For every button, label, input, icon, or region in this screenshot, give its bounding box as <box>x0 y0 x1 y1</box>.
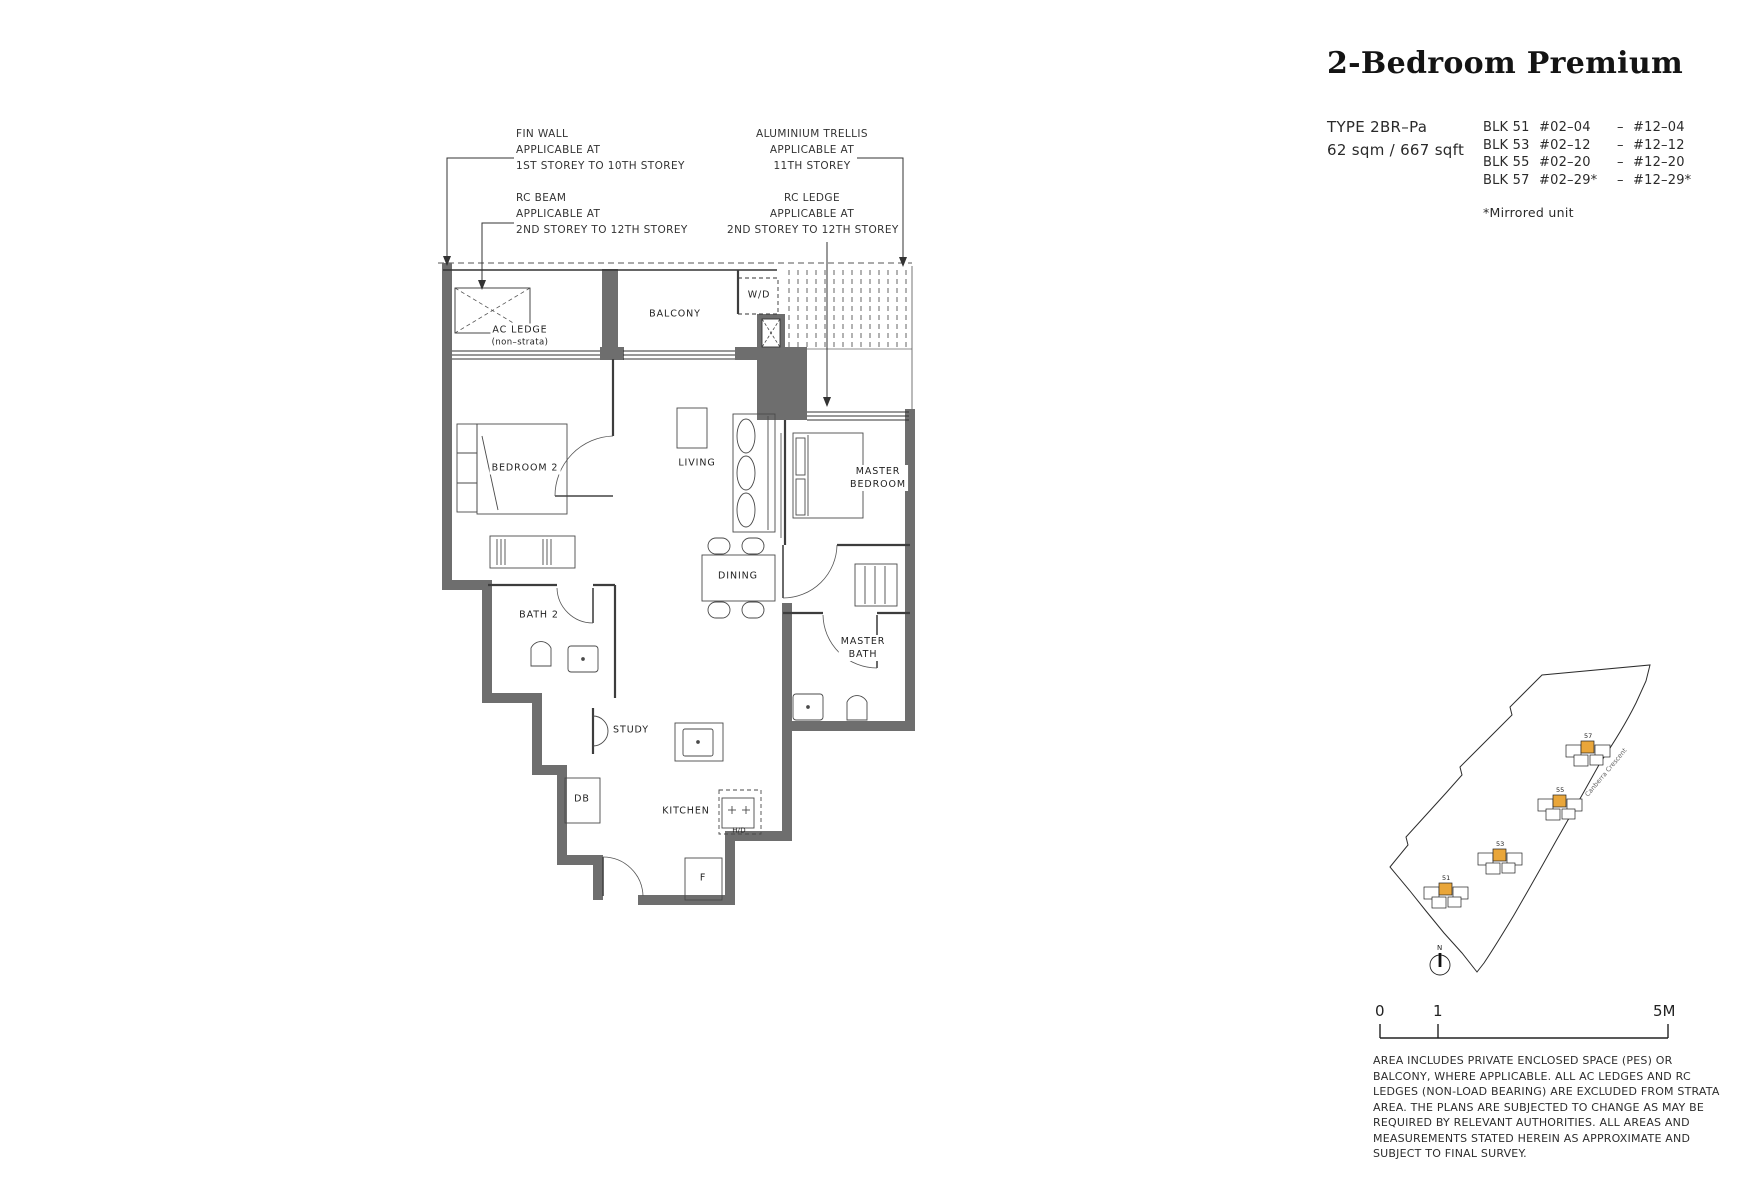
label-fridge: F <box>698 872 708 885</box>
label-kitchen: KITCHEN <box>660 805 711 818</box>
north-label: N <box>1437 944 1442 952</box>
trellis-line1: ALUMINIUM TRELLIS <box>727 126 897 142</box>
label-bath2: BATH 2 <box>517 609 561 622</box>
door-swing-arcs <box>555 436 877 896</box>
blk-label: BLK 55 <box>1483 154 1539 172</box>
unit-area: 62 sqm / 667 sqft <box>1327 139 1464 162</box>
windows <box>452 351 909 420</box>
label-hob: H/D <box>730 825 748 838</box>
fin-wall-line3: 1ST STOREY TO 10TH STOREY <box>516 158 685 174</box>
sofa <box>733 414 775 532</box>
annotation-rc-beam: RC BEAM APPLICABLE AT 2ND STOREY TO 12TH… <box>516 190 688 238</box>
stack-to: #12–12 <box>1633 137 1691 155</box>
toilet-master-bath <box>847 696 867 720</box>
site-boundary <box>1390 665 1650 972</box>
site-map-drawing: 51 53 55 57 Canberra Crescent N <box>1350 645 1670 990</box>
label-master-line2: BEDROOM <box>850 478 906 491</box>
label-ac-ledge: AC LEDGE <box>490 324 549 337</box>
blk-label: BLK 57 <box>1483 172 1539 190</box>
unit-type: TYPE 2BR–Pa <box>1327 116 1464 139</box>
hob <box>722 798 754 828</box>
wardrobe <box>855 564 897 606</box>
floor-plan: AC LEDGE (non–strata) BALCONY W/D BEDROO… <box>385 118 930 918</box>
block-row: BLK 51 #02–04 – #12–04 <box>1483 119 1691 137</box>
rc-ledge-line2: APPLICABLE AT <box>727 206 897 222</box>
fin-wall-line2: APPLICABLE AT <box>516 142 685 158</box>
label-living: LIVING <box>676 457 717 470</box>
floorplan-page: { "meta": { "colors": { "wall": "#6e6e6e… <box>0 0 1754 1202</box>
annotation-fin-wall: FIN WALL APPLICABLE AT 1ST STOREY TO 10T… <box>516 126 685 174</box>
stack-from: #02–04 <box>1539 119 1617 137</box>
blk-label: BLK 53 <box>1483 137 1539 155</box>
label-master-bath-line2: BATH <box>841 648 886 661</box>
scale-bar: 0 1 5M <box>1368 998 1688 1048</box>
rc-beam-line2: APPLICABLE AT <box>516 206 688 222</box>
label-wd: W/D <box>746 289 773 302</box>
stack-from: #02–20 <box>1539 154 1617 172</box>
stack-to: #12–29* <box>1633 172 1691 190</box>
label-master-line1: MASTER <box>850 465 906 478</box>
stack-sep: – <box>1617 137 1633 155</box>
study-desk <box>593 716 608 746</box>
stack-to: #12–04 <box>1633 119 1691 137</box>
rc-ledge-line1: RC LEDGE <box>727 190 897 206</box>
scale-zero: 0 <box>1375 1002 1385 1020</box>
label-master-bath: MASTER BATH <box>839 635 888 661</box>
dresser <box>490 536 575 568</box>
scale-one: 1 <box>1433 1002 1443 1020</box>
page-title: 2-Bedroom Premium <box>1327 46 1683 81</box>
block-row: BLK 57 #02–29* – #12–29* <box>1483 172 1691 190</box>
door-leaves <box>555 496 877 896</box>
rc-beam-line1: RC BEAM <box>516 190 688 206</box>
cluster-label-51: 51 <box>1442 874 1450 882</box>
label-db: DB <box>572 793 592 806</box>
label-dining: DINING <box>716 570 760 583</box>
unit-type-block: TYPE 2BR–Pa 62 sqm / 667 sqft <box>1327 116 1464 162</box>
label-balcony: BALCONY <box>647 308 703 321</box>
label-master-bedroom: MASTER BEDROOM <box>848 465 908 491</box>
label-master-bath-line1: MASTER <box>841 635 886 648</box>
stack-from: #02–29* <box>1539 172 1617 190</box>
blk-label: BLK 51 <box>1483 119 1539 137</box>
stack-sep: – <box>1617 172 1633 190</box>
scale-five: 5M <box>1653 1002 1676 1020</box>
cluster-label-57: 57 <box>1584 732 1592 740</box>
annotation-trellis: ALUMINIUM TRELLIS APPLICABLE AT 11TH STO… <box>727 126 897 174</box>
block-row: BLK 55 #02–20 – #12–20 <box>1483 154 1691 172</box>
cluster-label-55: 55 <box>1556 786 1564 794</box>
coffee-table <box>677 408 707 448</box>
mirrored-unit-note: *Mirrored unit <box>1483 205 1574 220</box>
toilet-bath2 <box>531 642 551 666</box>
rc-beam-line3: 2ND STOREY TO 12TH STOREY <box>516 222 688 238</box>
trellis-line2: APPLICABLE AT <box>727 142 897 158</box>
scale-bar-drawing: 0 1 5M <box>1368 998 1688 1048</box>
label-study: STUDY <box>611 724 651 737</box>
block-stack-table: BLK 51 #02–04 – #12–04 BLK 53 #02–12 – #… <box>1483 119 1691 189</box>
bed2-headboard <box>457 424 477 512</box>
cluster-label-53: 53 <box>1496 840 1504 848</box>
stack-from: #02–12 <box>1539 137 1617 155</box>
trellis-line3: 11TH STOREY <box>727 158 897 174</box>
label-ac-ledge-sub: (non–strata) <box>490 337 551 350</box>
north-compass-icon: N <box>1430 944 1450 975</box>
fin-wall-line1: FIN WALL <box>516 126 685 142</box>
aluminium-trellis-hatch <box>789 270 906 348</box>
annotation-rc-ledge: RC LEDGE APPLICABLE AT 2ND STOREY TO 12T… <box>727 190 897 238</box>
stack-sep: – <box>1617 154 1633 172</box>
interior-walls <box>488 270 910 754</box>
furniture <box>457 408 897 900</box>
floor-plan-drawing <box>385 118 930 918</box>
rc-ledge-line3: 2ND STOREY TO 12TH STOREY <box>727 222 897 238</box>
block-row: BLK 53 #02–12 – #12–12 <box>1483 137 1691 155</box>
stack-to: #12–20 <box>1633 154 1691 172</box>
label-bedroom2: BEDROOM 2 <box>490 462 561 475</box>
disclaimer-text: AREA INCLUDES PRIVATE ENCLOSED SPACE (PE… <box>1373 1053 1725 1162</box>
stack-sep: – <box>1617 119 1633 137</box>
site-map: 51 53 55 57 Canberra Crescent N <box>1350 645 1670 990</box>
